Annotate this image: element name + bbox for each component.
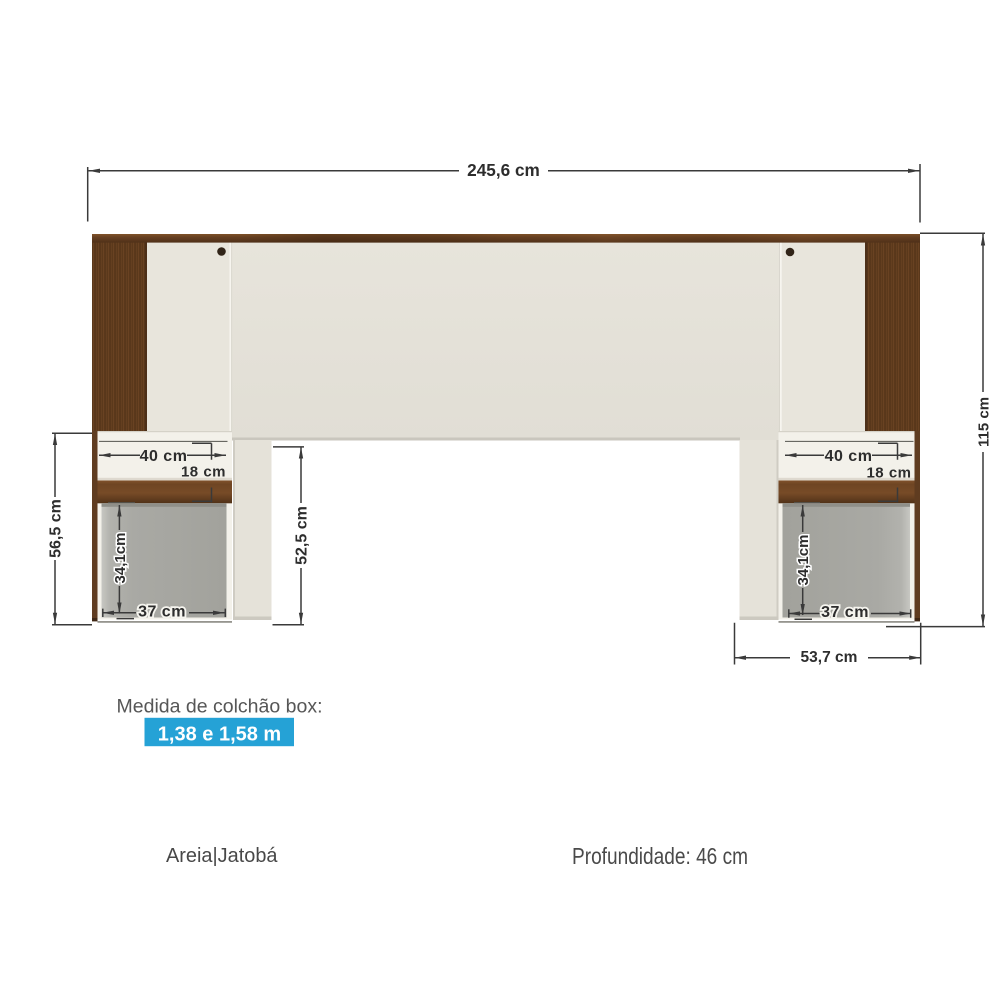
svg-text:53,7 cm: 53,7 cm xyxy=(801,649,858,666)
svg-text:18 cm: 18 cm xyxy=(866,464,911,481)
svg-text:37 cm: 37 cm xyxy=(138,604,186,621)
svg-text:34,1cm: 34,1cm xyxy=(795,535,812,586)
svg-text:Profundidade: 46 cm: Profundidade: 46 cm xyxy=(572,843,748,869)
svg-text:18 cm: 18 cm xyxy=(181,463,226,480)
svg-text:1,38 e 1,58 m: 1,38 e 1,58 m xyxy=(158,724,281,746)
svg-text:Medida de colchão box:: Medida de colchão box: xyxy=(117,697,323,718)
svg-text:115 cm: 115 cm xyxy=(975,397,992,447)
svg-text:37 cm: 37 cm xyxy=(821,604,869,621)
svg-text:40 cm: 40 cm xyxy=(140,448,188,465)
svg-text:52,5 cm: 52,5 cm xyxy=(294,506,311,565)
svg-text:Areia|Jatobá: Areia|Jatobá xyxy=(166,844,278,867)
svg-text:40 cm: 40 cm xyxy=(825,448,873,465)
svg-text:245,6 cm: 245,6 cm xyxy=(467,160,540,180)
svg-text:34,1cm: 34,1cm xyxy=(112,533,129,584)
svg-text:56,5 cm: 56,5 cm xyxy=(48,499,65,558)
